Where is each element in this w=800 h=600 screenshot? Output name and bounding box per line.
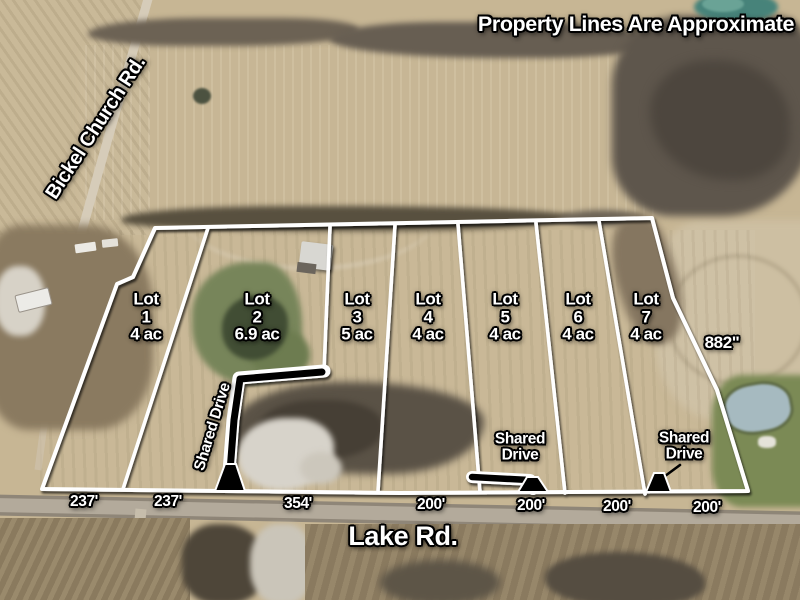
lot-4-label: Lot 4 4 ac (412, 290, 444, 343)
frontage-354: 354' (284, 496, 312, 512)
shared-drive-lot2-casing (228, 371, 324, 485)
lot-7-label: Lot 7 4 ac (630, 290, 662, 343)
frontage-237-b: 237' (154, 494, 182, 510)
boundary-dimension-882: 882" (705, 334, 740, 352)
lot-2-label: Lot 2 6.9 ac (235, 290, 280, 343)
aerial-lot-map: Property Lines Are Approximate Bickel Ch… (0, 0, 800, 600)
lot-3-label: Lot 3 5 ac (341, 290, 373, 343)
divider-lot6-lot7 (599, 221, 645, 494)
frontage-200-c: 200' (603, 499, 631, 515)
lot-1-label: Lot 1 4 ac (130, 290, 162, 343)
lot-5-label: Lot 5 4 ac (489, 290, 521, 343)
frontage-200-d: 200' (693, 500, 721, 516)
boundary-outer (42, 218, 748, 493)
disclaimer-note: Property Lines Are Approximate (478, 13, 794, 35)
divider-lot3-lot4 (378, 225, 395, 491)
shared-drive-label-lot7: Shared Drive (659, 431, 709, 464)
frontage-200-a: 200' (417, 497, 445, 513)
frontage-237-a: 237' (70, 494, 98, 510)
shared-drive-label-lot5: Shared Drive (495, 432, 545, 465)
divider-lot2-lot3-upper (324, 227, 330, 371)
shared-drive-lot2-foot (215, 464, 245, 491)
lot-6-label: Lot 6 4 ac (562, 290, 594, 343)
frontage-200-b: 200' (517, 498, 545, 514)
road-label-lake: Lake Rd. (348, 522, 457, 550)
divider-lot4-lot5 (458, 224, 480, 492)
